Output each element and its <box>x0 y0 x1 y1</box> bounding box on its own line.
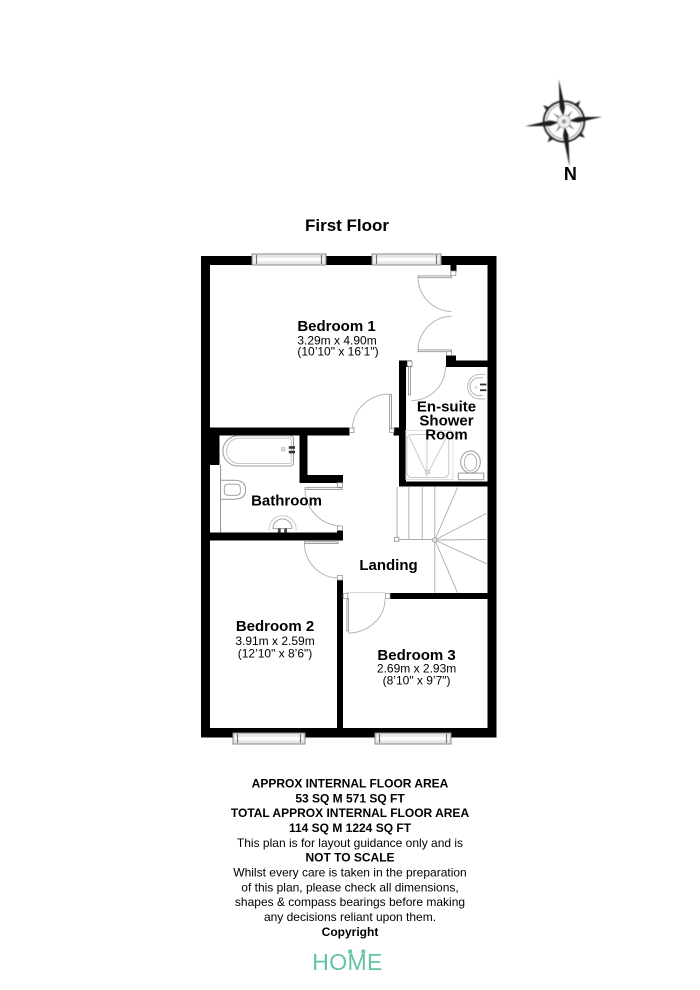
svg-text:This plan is for layout guidan: This plan is for layout guidance only an… <box>237 836 463 850</box>
svg-text:NOT TO SCALE: NOT TO SCALE <box>305 851 394 865</box>
svg-text:Bedroom 2: Bedroom 2 <box>236 618 314 635</box>
svg-text:Landing: Landing <box>359 557 417 574</box>
svg-text:Copyright: Copyright <box>322 925 379 939</box>
svg-text:Bedroom 1: Bedroom 1 <box>297 318 375 335</box>
svg-text:N: N <box>564 164 577 184</box>
svg-text:of this plan, please check all: of this plan, please check all dimension… <box>241 880 458 894</box>
svg-text:APPROX INTERNAL FLOOR AREA: APPROX INTERNAL FLOOR AREA <box>252 777 449 791</box>
svg-text:Bathroom: Bathroom <box>251 493 322 510</box>
svg-text:114 SQ M 1224 SQ FT: 114 SQ M 1224 SQ FT <box>289 821 412 835</box>
svg-text:(10’10" x 16’1"): (10’10" x 16’1") <box>297 345 378 359</box>
svg-text:53 SQ M 571 SQ FT: 53 SQ M 571 SQ FT <box>295 791 405 805</box>
svg-text:any decisions reliant upon the: any decisions reliant upon them. <box>264 910 436 924</box>
svg-text:First Floor: First Floor <box>305 216 389 235</box>
svg-text:HOME: HOME <box>312 949 383 975</box>
svg-text:(8’10" x 9’7"): (8’10" x 9’7") <box>383 674 451 688</box>
svg-text:(12’10" x 8’6"): (12’10" x 8’6") <box>238 647 313 661</box>
svg-text:shapes & compass bearings befo: shapes & compass bearings before making <box>235 895 465 909</box>
svg-text:Room: Room <box>425 427 468 444</box>
svg-text:TOTAL APPROX INTERNAL FLOOR AR: TOTAL APPROX INTERNAL FLOOR AREA <box>231 806 470 820</box>
svg-text:Whilst every care is taken in: Whilst every care is taken in the prepar… <box>233 866 466 880</box>
